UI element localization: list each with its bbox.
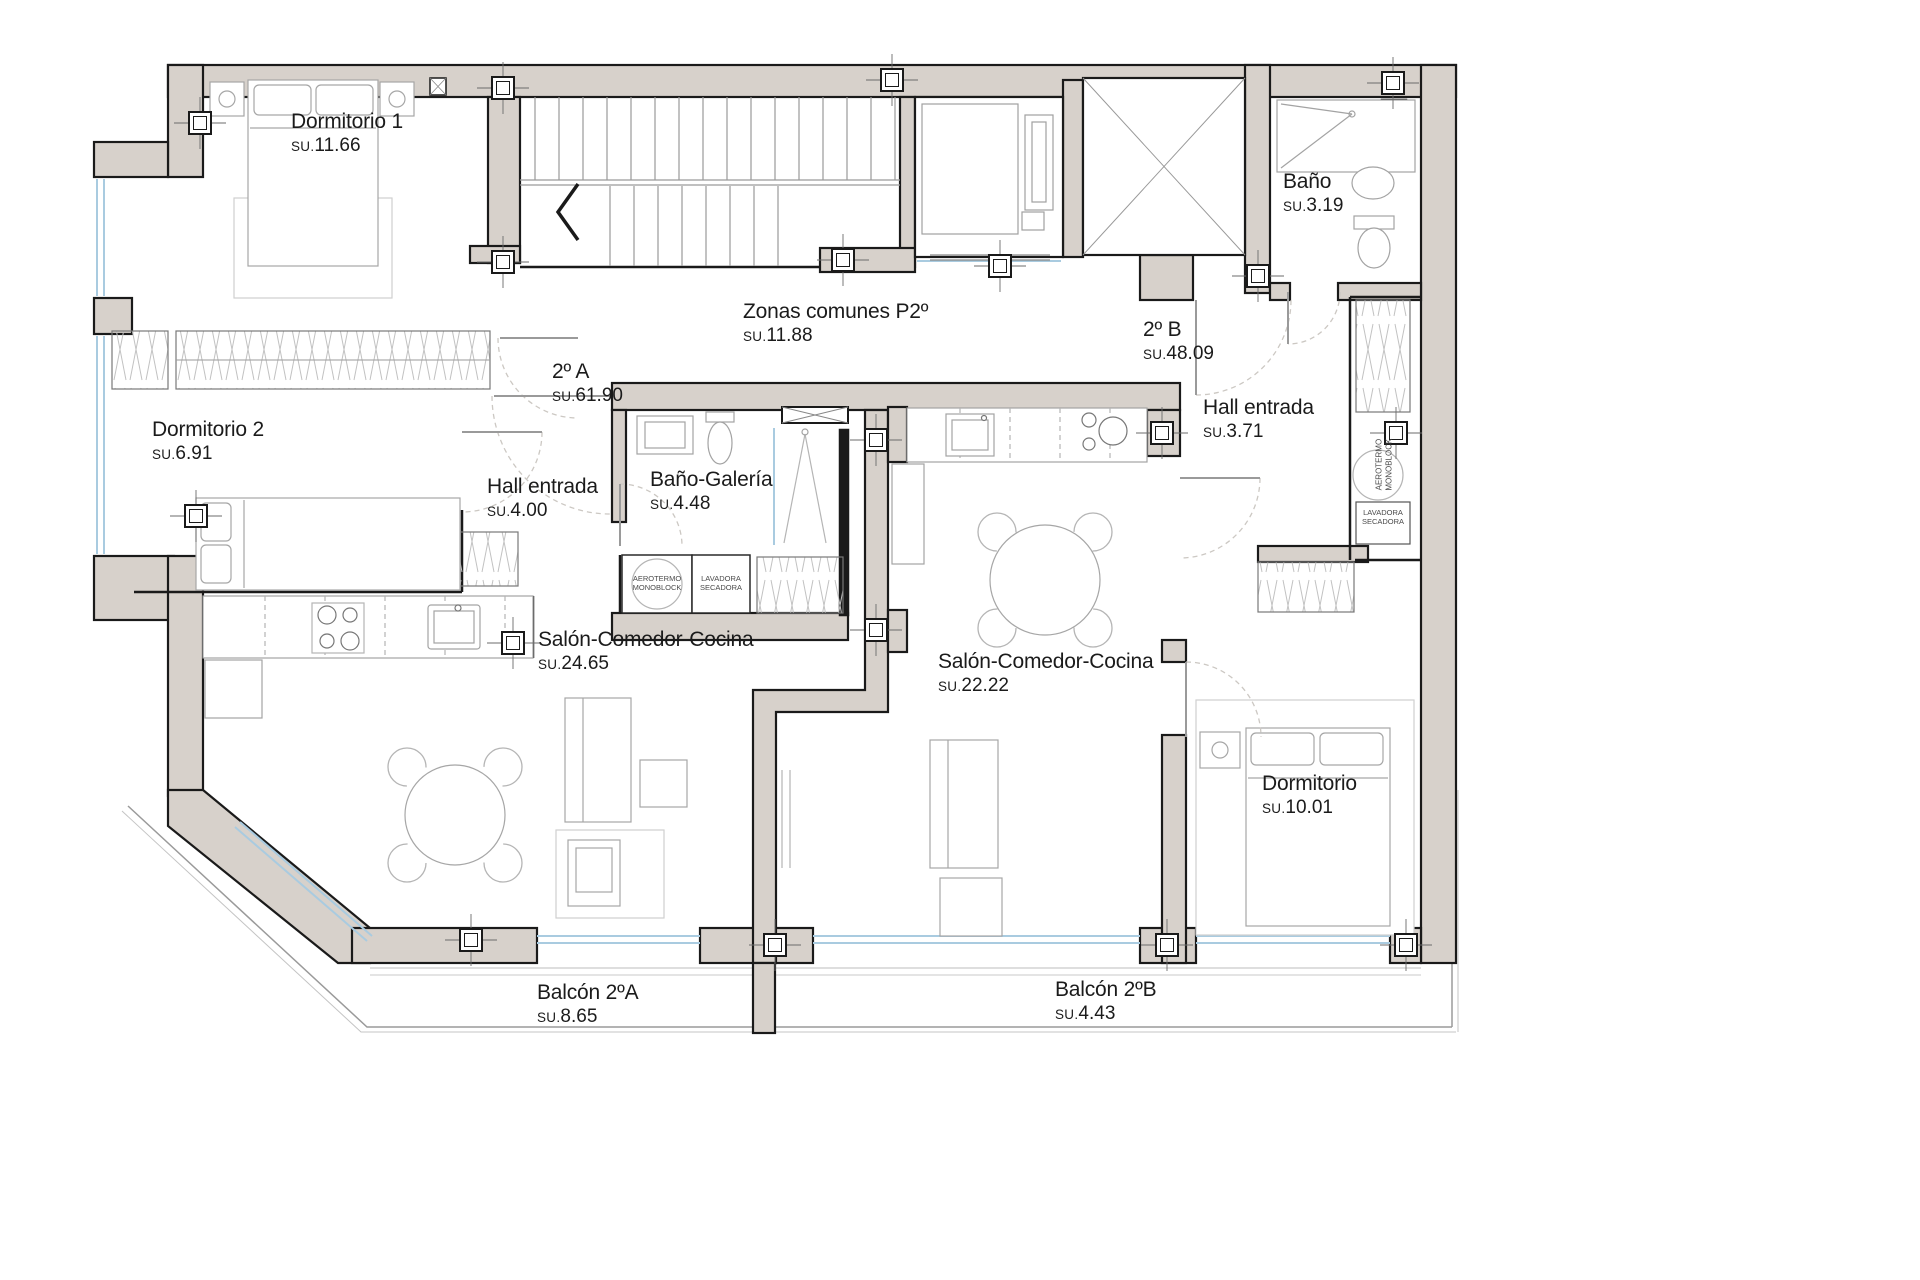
room-label-dormitorio-2: Dormitorio 2 SU.6.91 (152, 418, 264, 464)
elevator (915, 97, 1063, 260)
room-label-salon-b: Salón-Comedor-Cocina SU.22.22 (938, 650, 1153, 696)
label-aerotermo-a: AEROTERMO MONOBLOCK (624, 574, 690, 592)
floor-plan-drawing (0, 0, 1920, 1280)
kitchen-a (203, 596, 533, 718)
room-label-balcon-b: Balcón 2ºB SU.4.43 (1055, 978, 1156, 1024)
vent-box-bath-a (782, 407, 848, 423)
unit-label-2b: 2º B SU.48.09 (1143, 318, 1214, 364)
room-label-zonas-comunes: Zonas comunes P2º SU.11.88 (743, 300, 928, 346)
room-label-hall-b: Hall entrada SU.3.71 (1203, 396, 1314, 442)
ventilation-shaft (1083, 78, 1245, 255)
room-label-bano-galeria: Baño-Galería SU.4.48 (650, 468, 773, 514)
floor-plan-page: Dormitorio 1 SU.11.66 Dormitorio 2 SU.6.… (0, 0, 1920, 1280)
kitchen-b (892, 408, 1147, 564)
room-label-balcon-a: Balcón 2ºA SU.8.65 (537, 981, 638, 1027)
room-label-bano-b: Baño SU.3.19 (1283, 170, 1343, 216)
room-label-hall-a: Hall entrada SU.4.00 (487, 475, 598, 521)
living-a-furniture (388, 698, 687, 918)
label-lavadora-a: LAVADORA SECADORA (694, 574, 748, 592)
label-aerotermo-b: AEROTERMO MONOBLOCK (1374, 433, 1393, 497)
label-lavadora-b: LAVADORA SECADORA (1356, 508, 1410, 526)
room-label-dormitorio-1: Dormitorio 1 SU.11.66 (291, 110, 403, 156)
bed-dormitorio-2 (196, 498, 460, 590)
unit-label-2a: 2º A SU.61.90 (552, 360, 623, 406)
room-label-dormitorio-b: Dormitorio SU.10.01 (1262, 772, 1357, 818)
vent-box-stairs (430, 78, 446, 95)
room-label-salon-a: Salón-Comedor-Cocina SU.24.65 (538, 628, 753, 674)
